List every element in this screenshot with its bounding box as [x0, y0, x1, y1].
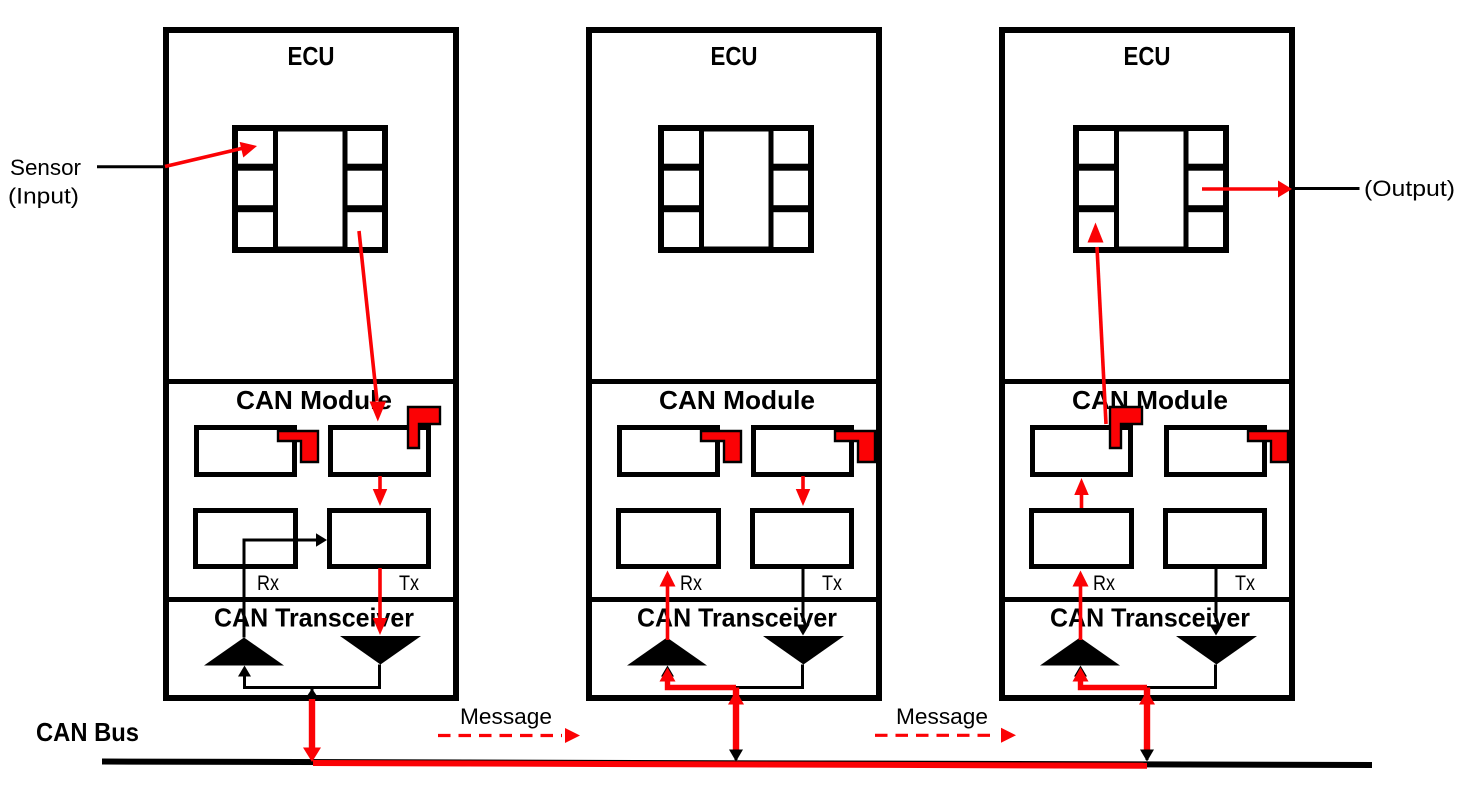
svg-text:CAN Module: CAN Module [236, 385, 392, 415]
svg-text:Tx: Tx [1235, 572, 1255, 595]
svg-text:(Output): (Output) [1364, 176, 1455, 201]
svg-text:ECU: ECU [711, 41, 758, 71]
svg-text:Tx: Tx [822, 572, 842, 595]
svg-text:(Input): (Input) [8, 184, 79, 209]
svg-text:Rx: Rx [257, 572, 279, 595]
svg-text:Tx: Tx [399, 572, 419, 595]
svg-text:ECU: ECU [1124, 41, 1171, 71]
svg-text:Message: Message [460, 704, 552, 729]
svg-text:CAN Module: CAN Module [1072, 385, 1228, 415]
svg-text:Rx: Rx [680, 572, 702, 595]
svg-text:CAN Module: CAN Module [659, 385, 815, 415]
svg-text:Rx: Rx [1093, 572, 1115, 595]
svg-text:CAN Bus: CAN Bus [36, 717, 139, 747]
svg-text:Sensor: Sensor [10, 155, 81, 180]
svg-text:ECU: ECU [288, 41, 335, 71]
svg-text:Message: Message [896, 704, 988, 729]
